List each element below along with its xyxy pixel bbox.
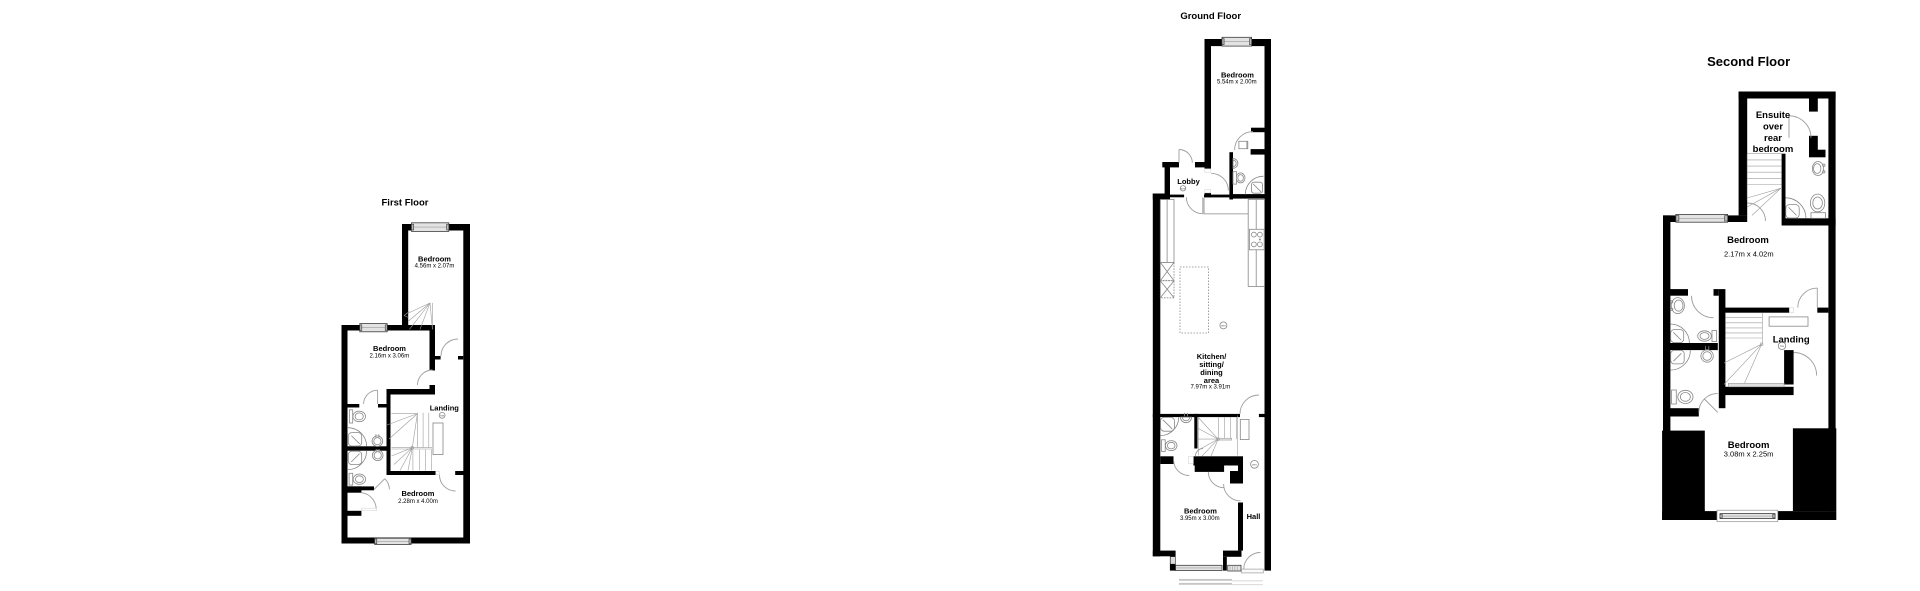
svg-text:wm: wm [1221, 324, 1226, 328]
svg-text:Landing: Landing [430, 403, 460, 412]
svg-text:wm: wm [1181, 186, 1186, 190]
svg-text:7.97m x 3.91m: 7.97m x 3.91m [1191, 385, 1231, 391]
svg-text:5.54m x 2.00m: 5.54m x 2.00m [1217, 79, 1257, 85]
svg-text:Ground Floor: Ground Floor [1180, 11, 1241, 22]
svg-text:Bedroom: Bedroom [401, 489, 434, 498]
svg-text:Bedroom: Bedroom [1184, 507, 1217, 516]
svg-text:Landing: Landing [1773, 334, 1810, 345]
svg-text:2.28m x 4.00m: 2.28m x 4.00m [398, 499, 438, 505]
svg-text:First Floor: First Floor [382, 197, 429, 208]
svg-text:3.95m x 3.00m: 3.95m x 3.00m [1180, 516, 1220, 522]
svg-text:area: area [1204, 376, 1220, 385]
svg-text:3.08m x 2.25m: 3.08m x 2.25m [1724, 449, 1774, 458]
svg-text:Hall: Hall [1247, 512, 1261, 521]
svg-text:Bedroom: Bedroom [373, 344, 406, 353]
svg-text:Bedroom: Bedroom [418, 255, 451, 264]
svg-text:Lobby: Lobby [1177, 177, 1200, 186]
svg-text:rear: rear [1764, 133, 1782, 144]
svg-text:Ensuite: Ensuite [1756, 110, 1790, 121]
svg-text:Bedroom: Bedroom [1727, 235, 1769, 246]
svg-text:wm: wm [1252, 463, 1257, 467]
svg-text:4.56m x 2.07m: 4.56m x 2.07m [415, 263, 455, 269]
svg-text:2.16m x 3.06m: 2.16m x 3.06m [370, 353, 410, 359]
svg-text:Bedroom: Bedroom [1221, 70, 1254, 79]
svg-text:Second Floor: Second Floor [1707, 54, 1790, 69]
svg-text:bedroom: bedroom [1753, 144, 1794, 155]
svg-text:2.17m x 4.02m: 2.17m x 4.02m [1724, 250, 1774, 259]
svg-text:over: over [1763, 121, 1783, 132]
